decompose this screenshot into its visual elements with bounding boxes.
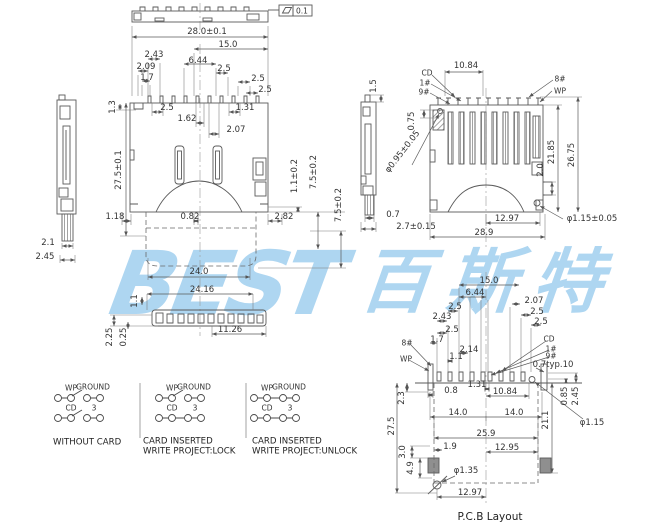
dim-label: 2.5 bbox=[258, 86, 272, 95]
dim-label: 14.0 bbox=[449, 409, 468, 418]
switch-col-label: 3 bbox=[92, 404, 97, 412]
switch-col-label: 3 bbox=[288, 404, 293, 412]
dim-label: 2.1 bbox=[41, 239, 55, 248]
dim-label: 2.07 bbox=[227, 126, 246, 135]
dim-label: 2.25 bbox=[106, 328, 115, 347]
dim-label: 21.1 bbox=[542, 411, 551, 430]
dim-label: φ1.15 bbox=[580, 419, 605, 428]
pin-label: 9# bbox=[418, 88, 429, 96]
right-view-linework bbox=[430, 98, 552, 212]
pin-label: 8# bbox=[554, 75, 565, 83]
front-card-dashed bbox=[146, 212, 256, 266]
pin-label: 9# bbox=[545, 352, 556, 360]
dim-label: 2.45 bbox=[36, 253, 55, 262]
switch-col-label: GROUND bbox=[76, 383, 110, 391]
bottom-view-linework bbox=[152, 310, 266, 326]
dim-label: 2.45 bbox=[572, 387, 581, 406]
pin-label: CD bbox=[543, 335, 554, 343]
switch-state-caption: CARD INSERTED bbox=[143, 438, 213, 447]
dim-label: 2.7±0.15 bbox=[396, 223, 436, 232]
dim-label: 1.1 bbox=[449, 353, 463, 362]
dim-label: 6.44 bbox=[189, 57, 208, 66]
dim-label: 2.5 bbox=[160, 104, 174, 113]
left-view-linework bbox=[57, 95, 76, 241]
dim-label: 10.84 bbox=[454, 62, 478, 71]
dim-label: 7.5±0.2 bbox=[335, 188, 344, 222]
dim-label: 0.82 bbox=[181, 213, 200, 222]
dim-label: 10.84 bbox=[493, 388, 517, 397]
switch-col-label: GROUND bbox=[272, 383, 306, 391]
pin-label: 1# bbox=[419, 79, 430, 87]
dim-label: 1.31 bbox=[468, 381, 487, 390]
switch-state-caption: WITHOUT CARD bbox=[53, 439, 121, 448]
dim-label: 2.09 bbox=[137, 63, 156, 72]
dim-label: 0.25 bbox=[120, 328, 129, 347]
dim-label: 1.9 bbox=[443, 443, 457, 452]
dim-label: 2.0 bbox=[537, 163, 546, 177]
dim-label: 1.18 bbox=[106, 213, 125, 222]
dim-label: 2.43 bbox=[145, 51, 164, 60]
pin-label: WP bbox=[554, 87, 566, 95]
pin-label: WP bbox=[400, 355, 412, 363]
dim-label: 26.75 bbox=[568, 143, 577, 167]
flatness-parallelogram-icon bbox=[283, 8, 292, 14]
dim-label: 1.7 bbox=[140, 74, 154, 83]
dim-label: 1.1±0.2 bbox=[291, 159, 300, 193]
pin-label: CD bbox=[421, 69, 432, 77]
dim-label: 14.0 bbox=[505, 409, 524, 418]
dim-label: φ1.35 bbox=[454, 467, 479, 476]
dim-label: 1.3 bbox=[109, 100, 118, 114]
switch-col-label: CD bbox=[261, 404, 272, 412]
dim-label: 2.5 bbox=[217, 65, 231, 74]
dim-label: 15.0 bbox=[480, 277, 499, 286]
switch-state-caption: CARD INSERTED bbox=[252, 438, 322, 447]
pcb-linework bbox=[415, 364, 582, 494]
dim-label: 0.7 bbox=[386, 211, 400, 220]
switch-col-label: CD bbox=[65, 404, 76, 412]
dim-label: 1.1 bbox=[131, 294, 140, 308]
dim-label: 11.26 bbox=[218, 326, 242, 335]
switch-col-label: GROUND bbox=[177, 383, 211, 391]
dim-label: 27.5±0.1 bbox=[115, 150, 124, 190]
dim-label: 1.62 bbox=[178, 115, 197, 124]
dim-label: 12.97 bbox=[458, 489, 482, 498]
pcb-caption: P.C.B Layout bbox=[458, 512, 523, 523]
dim-label: 7.5±0.2 bbox=[310, 155, 319, 189]
switch-state-caption: WRITE PROJECT:LOCK bbox=[143, 448, 235, 457]
dim-label: 28.0±0.1 bbox=[187, 28, 227, 37]
dim-label: 27.5 bbox=[388, 417, 397, 436]
front-view-linework bbox=[130, 96, 268, 212]
dim-label: 24.16 bbox=[190, 286, 214, 295]
dim-label: 24.0 bbox=[190, 268, 209, 277]
dim-label: 2.5 bbox=[251, 75, 265, 84]
dim-label: 25.9 bbox=[477, 430, 496, 439]
pin-label: 8# bbox=[401, 339, 412, 347]
dim-label: 0.7typ.10 bbox=[533, 361, 574, 370]
drawing-canvas: BEST百斯特 bbox=[0, 0, 650, 531]
mid-view-linework bbox=[361, 95, 376, 215]
dim-label: 3.0 bbox=[399, 445, 408, 459]
dim-label: 1.5 bbox=[370, 79, 379, 93]
dim-label: 12.97 bbox=[495, 215, 519, 224]
switch-col-label: CD bbox=[166, 404, 177, 412]
switch-col-label: 3 bbox=[193, 404, 198, 412]
dim-label: 0.75 bbox=[408, 112, 417, 131]
dim-label: 15.0 bbox=[219, 41, 238, 50]
dim-label: φ1.15±0.05 bbox=[567, 215, 618, 224]
switch-state-caption: WRITE PROJECT:UNLOCK bbox=[252, 448, 357, 457]
dim-label: 2.5 bbox=[534, 318, 548, 327]
dim-label: 2.43 bbox=[433, 313, 452, 322]
dim-label: 4.9 bbox=[407, 461, 416, 475]
dim-label: 0.85 bbox=[561, 387, 570, 406]
dim-label: 2.5 bbox=[445, 326, 459, 335]
dim-label: 1.7 bbox=[430, 336, 444, 345]
dim-label: 28.9 bbox=[475, 229, 494, 238]
dim-label: 12.95 bbox=[495, 444, 519, 453]
dim-label: 6.44 bbox=[466, 289, 485, 298]
flatness-value: 0.1 bbox=[296, 7, 308, 15]
dim-label: 2.3 bbox=[398, 391, 407, 405]
dim-label: 1.31 bbox=[236, 104, 255, 113]
dim-label: 2.5 bbox=[530, 308, 544, 317]
dim-label: 2.5 bbox=[448, 303, 462, 312]
centerlines bbox=[200, 3, 486, 505]
dim-label: 0.8 bbox=[444, 387, 458, 396]
dim-label: 2.82 bbox=[275, 213, 294, 222]
dim-label: 21.85 bbox=[548, 140, 557, 164]
dim-label: 2.07 bbox=[525, 297, 544, 306]
